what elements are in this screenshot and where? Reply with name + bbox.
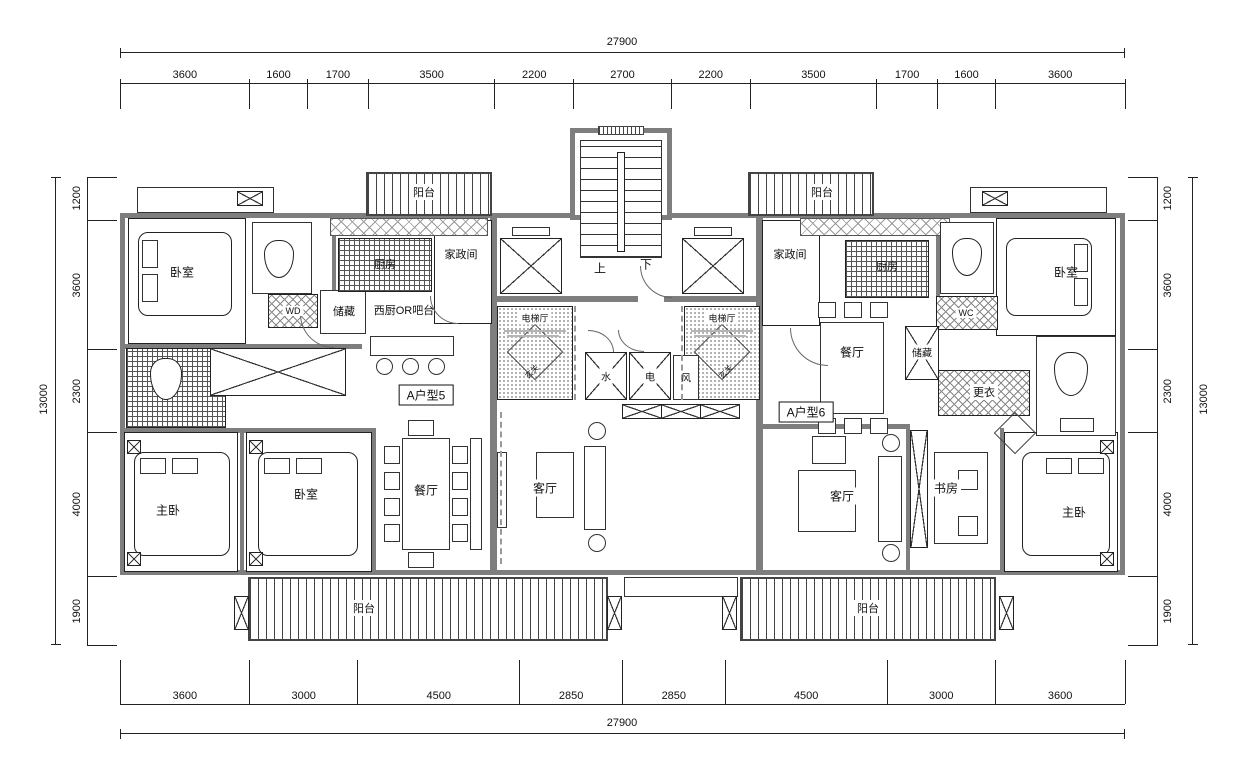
dim-bottom-total-line xyxy=(120,733,1125,734)
dim-segment: 3500 xyxy=(369,60,495,83)
sofa-left xyxy=(584,446,606,530)
wd-label: WD xyxy=(283,306,304,316)
middle-bottom-platform xyxy=(624,577,738,597)
wall-left-bed-divider2 xyxy=(372,432,376,574)
balcony-post xyxy=(999,596,1014,630)
dim-segment-label: 1200 xyxy=(1162,186,1174,210)
bar-stool xyxy=(402,358,419,375)
dim-segment: 3600 xyxy=(995,661,1125,704)
desk-chair xyxy=(958,516,978,536)
dim-top-chain: 3600160017003500220027002200350017001600… xyxy=(120,60,1125,84)
west-kitchen-label: 西厨OR吧台 xyxy=(374,302,435,318)
shaft-water-label: 水 xyxy=(598,369,614,384)
dim-bottom-total-label: 27900 xyxy=(607,717,638,729)
bedroom-top-left-label: 卧室 xyxy=(170,264,194,281)
dim-segment: 2200 xyxy=(671,60,750,83)
floor-plan-canvas: 27900 3600160017003500220027002200350017… xyxy=(0,0,1245,766)
core-sill-box xyxy=(700,404,740,419)
elevator-shaft-left xyxy=(500,238,562,294)
elevator-panel-left xyxy=(512,227,550,236)
dim-left-total-line xyxy=(55,177,56,645)
kitchen-counter-right xyxy=(800,218,950,236)
dining-chair xyxy=(844,418,862,434)
dim-bottom-chain: 36003000450028502850450030003600 xyxy=(120,661,1125,705)
stair-up-label: 上 xyxy=(594,260,606,277)
sideboard-left xyxy=(470,438,482,550)
dim-left-chain: 12003600230040001900 xyxy=(60,177,88,645)
storage-left-label: 储藏 xyxy=(330,303,358,319)
dim-left-total-label: 13000 xyxy=(38,384,50,415)
stair-down-label: 下 xyxy=(640,256,652,273)
dim-segment: 1200 xyxy=(1158,177,1185,220)
fine-print-line xyxy=(504,330,566,332)
bedroom-top-right-label: 卧室 xyxy=(1054,264,1078,281)
sink xyxy=(1060,418,1094,432)
pillow xyxy=(142,240,158,268)
dim-segment-label: 3600 xyxy=(173,690,197,702)
vent-box-top-right xyxy=(982,191,1008,206)
dim-segment-label: 3600 xyxy=(71,273,83,297)
tv-right xyxy=(812,436,846,464)
balcony-post xyxy=(234,596,249,630)
dim-segment-label: 2700 xyxy=(610,69,634,81)
dim-segment-label: 1600 xyxy=(954,69,978,81)
dim-segment-label: 3000 xyxy=(929,690,953,702)
dim-segment-label: 3600 xyxy=(1048,69,1072,81)
dim-segment: 3000 xyxy=(250,661,358,704)
dim-right-total-line xyxy=(1192,177,1193,645)
unit-right-label: A户型6 xyxy=(779,402,834,423)
pillow xyxy=(1074,278,1088,306)
balcony-bottom-left xyxy=(248,577,608,641)
side-table xyxy=(882,434,900,452)
tv-bench-left xyxy=(497,452,507,528)
dining-chair xyxy=(844,302,862,318)
kitchen-counter-left xyxy=(330,218,488,236)
dim-segment: 3500 xyxy=(750,60,876,83)
dim-segment-label: 1700 xyxy=(326,69,350,81)
corridor-floor-panel-left xyxy=(210,348,346,396)
dining-chair xyxy=(452,498,468,516)
dining-chair xyxy=(452,446,468,464)
dim-segment: 1200 xyxy=(60,177,87,220)
dim-segment: 1900 xyxy=(60,577,87,645)
dim-segment: 4500 xyxy=(725,661,887,704)
dim-segment: 1700 xyxy=(876,60,937,83)
dim-segment-label: 3600 xyxy=(173,69,197,81)
balcony-post xyxy=(722,596,737,630)
dim-segment: 2700 xyxy=(574,60,671,83)
dim-segment-label: 4500 xyxy=(794,690,818,702)
stair-rail xyxy=(617,152,625,252)
nightstand xyxy=(127,552,141,566)
dim-segment: 1900 xyxy=(1158,577,1185,645)
dim-segment-label: 2300 xyxy=(71,379,83,403)
dim-segment-label: 2850 xyxy=(662,690,686,702)
wall-core-mid-left xyxy=(492,296,638,302)
dim-segment-label: 4000 xyxy=(1162,492,1174,516)
storage-right-label: 储藏 xyxy=(909,345,935,360)
living-left-label: 客厅 xyxy=(530,480,560,497)
dim-segment-label: 2850 xyxy=(559,690,583,702)
dim-segment-label: 4500 xyxy=(427,690,451,702)
dim-segment: 4500 xyxy=(358,661,520,704)
dim-segment: 1600 xyxy=(938,60,996,83)
dim-segment: 3600 xyxy=(120,60,250,83)
dim-segment-label: 2200 xyxy=(699,69,723,81)
dim-segment: 2200 xyxy=(495,60,574,83)
dim-segment: 4000 xyxy=(1158,433,1185,577)
balcony-top-left-label: 阳台 xyxy=(410,184,438,200)
living-left-dashed xyxy=(500,412,502,564)
dining-chair xyxy=(870,302,888,318)
pillow xyxy=(140,458,166,474)
dim-segment-label: 3500 xyxy=(801,69,825,81)
master-bedroom-right-label: 主卧 xyxy=(1062,504,1086,521)
dressing-right-label: 更衣 xyxy=(970,384,998,400)
wall-left-bed-divider1 xyxy=(240,432,244,574)
dim-segment: 2300 xyxy=(1158,350,1185,433)
elevator-hall-right-label: 电梯厅 xyxy=(705,312,738,325)
dim-segment-label: 1600 xyxy=(266,69,290,81)
dining-left-label: 餐厅 xyxy=(411,482,441,499)
dining-chair xyxy=(408,552,434,568)
nightstand xyxy=(249,552,263,566)
balcony-bottom-left-label: 阳台 xyxy=(350,600,378,616)
dim-segment-label: 1700 xyxy=(895,69,919,81)
dining-chair xyxy=(452,472,468,490)
dim-segment: 3600 xyxy=(120,661,250,704)
bookshelf xyxy=(910,430,928,548)
dim-segment: 2300 xyxy=(60,350,87,433)
housekeeping-right-label: 家政间 xyxy=(771,246,810,262)
living-right-label: 客厅 xyxy=(827,488,857,505)
dim-segment-label: 2200 xyxy=(522,69,546,81)
hall-dashed-door-left xyxy=(574,306,576,400)
core-sill-box xyxy=(661,404,701,419)
nightstand xyxy=(1100,552,1114,566)
dim-right-total-label: 13000 xyxy=(1198,384,1210,415)
balcony-bottom-right-label: 阳台 xyxy=(854,600,882,616)
side-table xyxy=(588,422,606,440)
dim-segment-label: 1900 xyxy=(1162,599,1174,623)
nightstand xyxy=(1100,440,1114,454)
dining-chair xyxy=(870,418,888,434)
dining-table-right xyxy=(820,322,884,414)
master-bedroom-left-label: 主卧 xyxy=(156,502,180,519)
balcony-top-right-label: 阳台 xyxy=(808,184,836,200)
side-table xyxy=(588,534,606,552)
vent-box-top-left xyxy=(237,191,263,206)
kitchen-left-label: 厨房 xyxy=(374,256,396,272)
bar-counter xyxy=(370,336,454,356)
dim-right-chain: 12003600230040001900 xyxy=(1157,177,1185,645)
hall-dashed-door-right xyxy=(681,306,683,400)
shaft-vent-label: 风 xyxy=(681,370,691,385)
dim-segment: 1700 xyxy=(307,60,368,83)
balcony-post xyxy=(607,596,622,630)
core-sill-box xyxy=(622,404,662,419)
elevator-shaft-right xyxy=(682,238,744,294)
fine-print-line xyxy=(507,335,559,337)
sofa-right xyxy=(878,456,902,542)
pillow xyxy=(172,458,198,474)
elevator-panel-right xyxy=(694,227,732,236)
dim-segment: 3600 xyxy=(1158,220,1185,350)
bar-stool xyxy=(428,358,445,375)
pillow xyxy=(264,458,290,474)
stair-tower-window xyxy=(598,126,644,135)
dim-segment: 3600 xyxy=(995,60,1125,83)
bar-stool xyxy=(376,358,393,375)
nightstand xyxy=(127,440,141,454)
fine-print-line xyxy=(694,335,746,337)
dim-segment: 3000 xyxy=(887,661,995,704)
side-table xyxy=(882,544,900,562)
dim-segment-label: 4000 xyxy=(71,492,83,516)
dim-segment-label: 3500 xyxy=(419,69,443,81)
bedroom-bottom-left-label: 卧室 xyxy=(294,486,318,503)
fine-print-line xyxy=(691,330,753,332)
dim-segment-label: 3600 xyxy=(1162,273,1174,297)
dining-right-label: 餐厅 xyxy=(837,344,867,361)
dim-segment-label: 3000 xyxy=(291,690,315,702)
dim-segment-label: 1200 xyxy=(71,186,83,210)
dining-chair xyxy=(408,420,434,436)
kitchen-right-label: 厨房 xyxy=(876,258,898,274)
elevator-hall-left-label: 电梯厅 xyxy=(518,312,551,325)
dining-chair xyxy=(818,302,836,318)
dim-segment: 1600 xyxy=(250,60,308,83)
dim-top-total-label: 27900 xyxy=(607,36,638,48)
dining-chair xyxy=(452,524,468,542)
pillow xyxy=(142,274,158,302)
dining-chair xyxy=(384,498,400,516)
dim-segment: 4000 xyxy=(60,433,87,577)
dining-chair xyxy=(384,524,400,542)
housekeeping-left-label: 家政间 xyxy=(442,246,481,262)
dim-segment-label: 1900 xyxy=(71,599,83,623)
dim-segment: 2850 xyxy=(622,661,725,704)
shaft-power-label: 电 xyxy=(642,369,658,384)
unit-left-label: A户型5 xyxy=(399,385,454,406)
dim-top-total-line xyxy=(120,52,1125,53)
dining-chair xyxy=(384,472,400,490)
wc-label: WC xyxy=(956,308,977,318)
study-label: 书房 xyxy=(931,480,961,497)
dim-segment: 2850 xyxy=(520,661,623,704)
dim-segment-label: 2300 xyxy=(1162,379,1174,403)
pillow xyxy=(296,458,322,474)
pillow xyxy=(1046,458,1072,474)
wall-core-mid-right xyxy=(664,296,760,302)
dim-segment: 3600 xyxy=(60,220,87,350)
pillow xyxy=(1078,458,1104,474)
nightstand xyxy=(249,440,263,454)
dim-segment-label: 3600 xyxy=(1048,690,1072,702)
dining-chair xyxy=(384,446,400,464)
